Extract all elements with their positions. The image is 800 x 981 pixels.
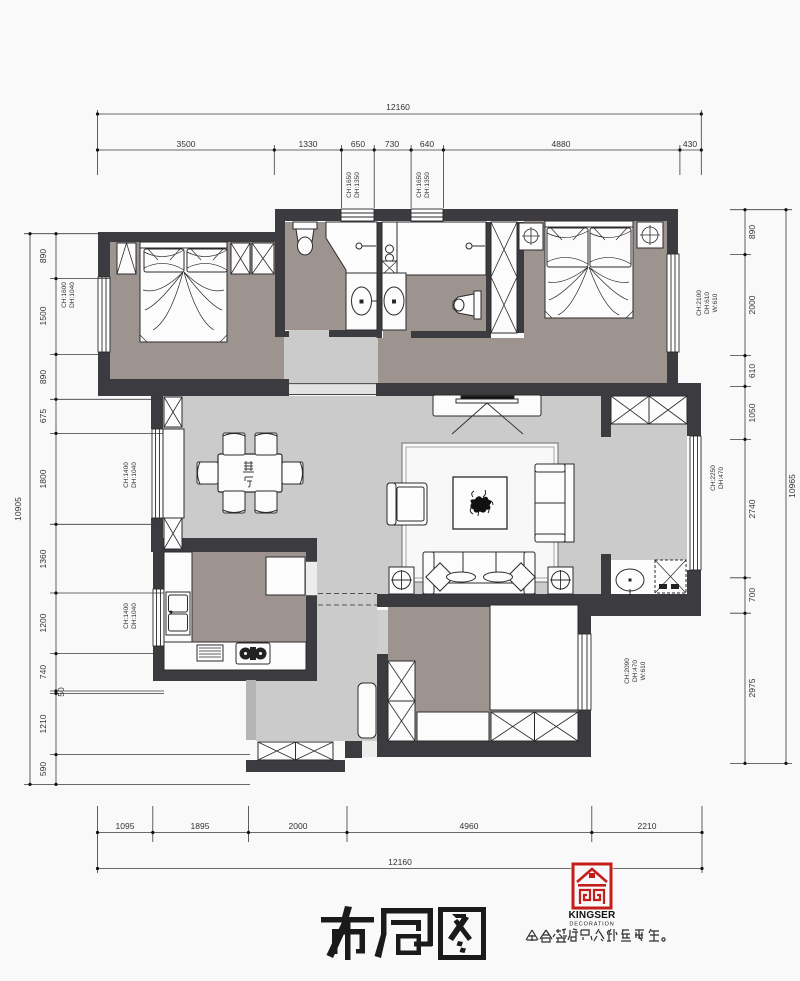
svg-text:DH:470: DH:470	[632, 660, 639, 682]
svg-text:CH:1650: CH:1650	[346, 172, 353, 198]
svg-text:2000: 2000	[289, 821, 308, 831]
svg-text:CH:2250: CH:2250	[710, 465, 717, 491]
svg-text:10905: 10905	[13, 497, 23, 521]
svg-text:1500: 1500	[38, 306, 48, 325]
svg-text:430: 430	[683, 139, 697, 149]
svg-text:CH:1600: CH:1600	[61, 282, 68, 308]
svg-text:3500: 3500	[177, 139, 196, 149]
svg-text:730: 730	[385, 139, 399, 149]
svg-text:CH:1400: CH:1400	[123, 462, 130, 488]
svg-text:890: 890	[38, 249, 48, 263]
svg-text:590: 590	[38, 762, 48, 776]
svg-text:DH:470: DH:470	[718, 467, 725, 489]
svg-text:KINGSER: KINGSER	[569, 910, 617, 921]
svg-text:650: 650	[351, 139, 365, 149]
svg-text:DH:1040: DH:1040	[69, 282, 76, 308]
svg-text:DECORATION: DECORATION	[569, 922, 614, 928]
svg-text:CH:2090: CH:2090	[624, 658, 631, 684]
svg-text:1095: 1095	[116, 821, 135, 831]
svg-text:12160: 12160	[386, 102, 410, 112]
svg-text:890: 890	[38, 370, 48, 384]
svg-text:50: 50	[56, 687, 66, 697]
svg-text:1360: 1360	[38, 549, 48, 568]
svg-text:700: 700	[747, 588, 757, 602]
svg-text:DH:1350: DH:1350	[354, 172, 361, 198]
svg-text:1800: 1800	[38, 469, 48, 488]
svg-text:DH:1040: DH:1040	[131, 462, 138, 488]
svg-text:W:610: W:610	[640, 661, 647, 680]
svg-text:DH:610: DH:610	[704, 292, 711, 314]
svg-text:1895: 1895	[191, 821, 210, 831]
svg-text:1050: 1050	[747, 403, 757, 422]
svg-text:890: 890	[747, 225, 757, 239]
svg-text:2740: 2740	[747, 499, 757, 518]
svg-text:12160: 12160	[388, 857, 412, 867]
svg-text:4880: 4880	[552, 139, 571, 149]
svg-text:CH:2100: CH:2100	[696, 290, 703, 316]
svg-text:1210: 1210	[38, 714, 48, 733]
svg-text:1330: 1330	[299, 139, 318, 149]
svg-text:10965: 10965	[787, 474, 797, 498]
svg-text:W:610: W:610	[712, 293, 719, 312]
svg-text:740: 740	[38, 665, 48, 679]
svg-text:675: 675	[38, 409, 48, 423]
svg-text:4960: 4960	[460, 821, 479, 831]
svg-text:1200: 1200	[38, 613, 48, 632]
svg-text:2210: 2210	[638, 821, 657, 831]
svg-text:DH:1350: DH:1350	[424, 172, 431, 198]
svg-text:610: 610	[747, 364, 757, 378]
svg-text:DH:1040: DH:1040	[131, 603, 138, 629]
svg-text:2000: 2000	[747, 295, 757, 314]
svg-text:CH:1650: CH:1650	[416, 172, 423, 198]
svg-text:CH:1400: CH:1400	[123, 603, 130, 629]
svg-text:640: 640	[420, 139, 434, 149]
svg-text:2975: 2975	[747, 678, 757, 697]
